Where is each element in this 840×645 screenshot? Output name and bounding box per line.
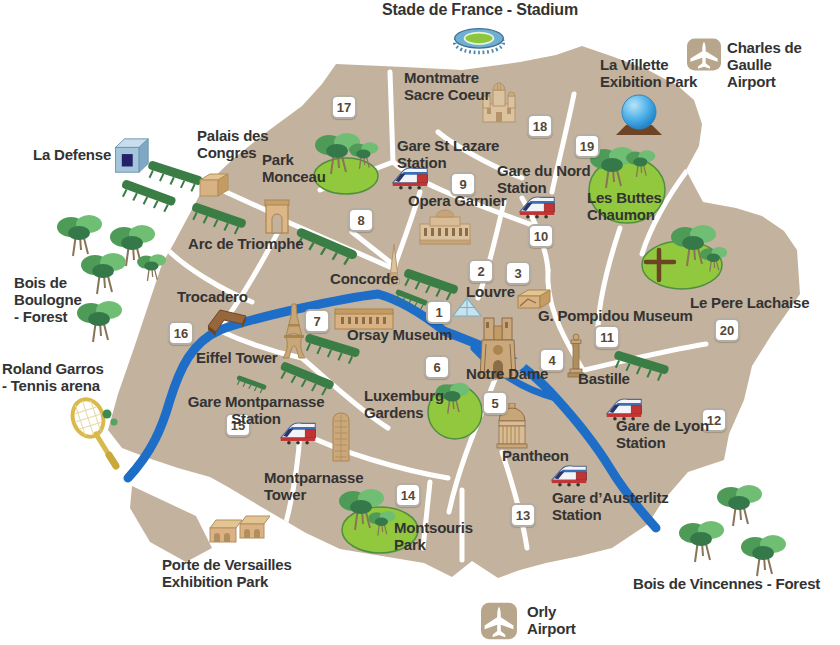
arc-de-triomphe-icon[interactable] — [263, 198, 291, 236]
label-lachaise: Le Pere Lachaise — [690, 295, 809, 312]
district-badge-19[interactable]: 19 — [574, 134, 600, 158]
label-orsay: Orsay Museum — [347, 327, 452, 344]
label-buttes: Les Buttes Chaumon — [587, 190, 662, 224]
label-cdg: Charles de Gaulle Airport — [727, 40, 840, 91]
tennis-racket-icon[interactable] — [62, 396, 132, 474]
district-badge-8[interactable]: 8 — [348, 208, 374, 232]
label-opera: Opera Garnier — [408, 193, 506, 210]
label-montparnasse-tower: Montparnasse Tower — [264, 470, 363, 504]
southwest-district-area — [130, 486, 212, 562]
porte-de-versailles-icon[interactable] — [208, 512, 270, 550]
label-trocadero: Trocadero — [177, 289, 248, 306]
district-badge-11[interactable]: 11 — [594, 325, 620, 349]
label-roland: Roland Garros - Tennis arena — [2, 361, 104, 395]
label-vincennes: Bois de Vincennes - Forest — [633, 576, 820, 593]
palais-des-congres-icon[interactable] — [198, 172, 230, 198]
label-pantheon: Pantheon — [502, 448, 569, 465]
label-boulogne: Bois de Boulogne - Forest — [14, 275, 82, 326]
pere-lachaise-area — [642, 241, 722, 289]
label-stade: Stade de France - Stadium — [382, 1, 578, 19]
label-monceau: Park Monceau — [262, 152, 326, 186]
district-badge-18[interactable]: 18 — [527, 114, 553, 138]
district-badge-2[interactable]: 2 — [468, 259, 494, 283]
label-arc: Arc de Triomphe — [188, 236, 303, 253]
la-defense-cube-icon[interactable] — [110, 136, 150, 176]
district-badge-20[interactable]: 20 — [714, 318, 740, 342]
label-nord: Gare du Nord Station — [497, 163, 590, 197]
opera-garnier-icon[interactable] — [418, 208, 472, 246]
label-gare-lyon: Gare de Lyon Station — [616, 418, 709, 452]
label-montmatre: Montmatre Sacre Coeur — [404, 70, 490, 104]
label-austerlitz: Gare d’Austerlitz Station — [552, 490, 669, 524]
district-badge-13[interactable]: 13 — [510, 503, 536, 527]
district-badge-16[interactable]: 16 — [168, 321, 194, 345]
label-bastille: Bastille — [578, 371, 630, 388]
district-badge-17[interactable]: 17 — [331, 95, 357, 119]
label-palais: Palais des Congres — [197, 128, 268, 162]
label-eiffel: Eiffel Tower — [196, 350, 278, 367]
montparnasse-tower-icon[interactable] — [327, 411, 355, 465]
label-louvre: Louvre — [466, 284, 515, 301]
label-defense: La Defense — [33, 147, 111, 164]
district-badge-1[interactable]: 1 — [426, 300, 452, 324]
district-badge-10[interactable]: 10 — [528, 224, 554, 248]
district-badge-3[interactable]: 3 — [505, 261, 531, 285]
label-orly: Orly Airport — [527, 604, 576, 638]
stadium-icon[interactable] — [452, 26, 506, 56]
district-badge-14[interactable]: 14 — [395, 483, 421, 507]
paris-tourist-map: Stade de France - StadiumCharles de Gaul… — [0, 0, 840, 645]
label-versailles: Porte de Versailles Exhibition Park — [162, 557, 292, 591]
trocadero-icon[interactable] — [204, 304, 248, 340]
geode-sphere-icon[interactable] — [608, 93, 670, 139]
label-concorde: Concorde — [330, 271, 398, 288]
label-pompidou: G. Pompidou Museum — [538, 308, 693, 325]
district-badge-5[interactable]: 5 — [482, 391, 508, 415]
orly-airplane-icon[interactable] — [481, 601, 517, 641]
label-montsouris: Montsouris Park — [394, 520, 473, 554]
label-lazare: Gare St Lazare Station — [397, 138, 499, 172]
label-villette: La Villette Exibition Park — [600, 57, 697, 91]
label-gare-montparnasse: Gare Montparnasse Station — [188, 394, 325, 428]
label-luxemburg: Luxemburg Gardens — [364, 388, 444, 422]
label-notredame: Notre Dame — [466, 366, 548, 383]
district-badge-7[interactable]: 7 — [304, 309, 330, 333]
district-badge-6[interactable]: 6 — [424, 355, 450, 379]
